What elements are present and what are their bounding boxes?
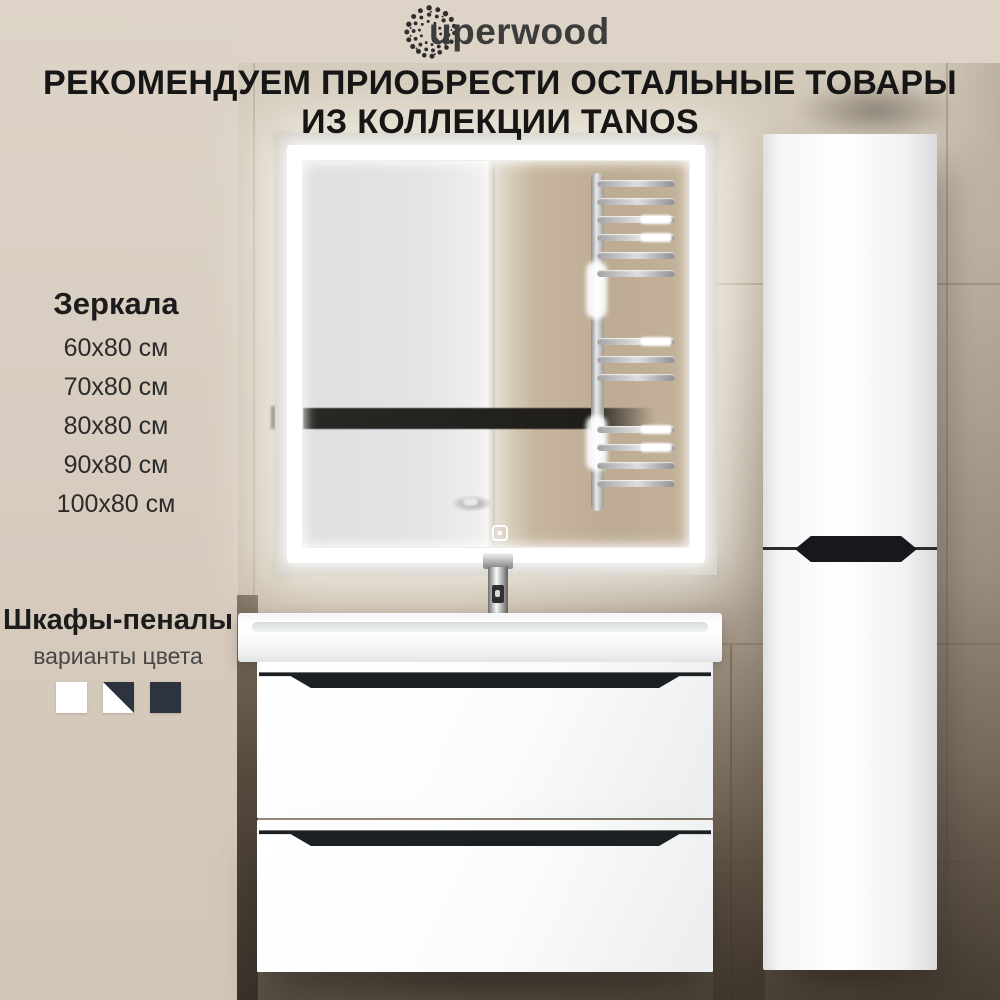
color-swatch-white-dark — [103, 682, 134, 713]
tall-cabinet-handle — [795, 536, 917, 562]
tile-grout-line — [253, 63, 255, 595]
color-swatch-white — [56, 682, 87, 713]
tall-cabinet-door-seam — [763, 547, 797, 550]
heading-line-1: РЕКОМЕНДУЕМ ПРИОБРЕСТИ ОСТАЛЬНЫЕ ТОВАРЫ — [0, 64, 1000, 103]
faucet-spout-highlight — [495, 590, 500, 597]
sink-basin-shadow — [252, 622, 708, 632]
heading-line-2: ИЗ КОЛЛЕКЦИИ TANOS — [0, 103, 1000, 142]
pencil-cabinets-title: Шкафы-пеналы — [0, 604, 236, 637]
color-options-label: варианты цвета — [0, 643, 236, 670]
brand-logo: uperwood — [403, 6, 610, 58]
mirror-size-item: 80х80 см — [0, 407, 232, 446]
tall-cabinet-door-seam — [915, 547, 937, 550]
color-swatch-row — [0, 682, 236, 713]
logo-text: uperwood — [429, 11, 610, 53]
mirrors-title: Зеркала — [0, 286, 232, 322]
mirror-size-item: 100х80 см — [0, 485, 232, 524]
mirror-size-item: 70х80 см — [0, 368, 232, 407]
vanity-drawer-bottom — [257, 820, 713, 972]
mirror-sizes-list: 60х80 см 70х80 см 80х80 см 90х80 см 100х… — [0, 329, 232, 524]
led-light-frame — [287, 145, 705, 563]
drawer-handle-groove — [259, 671, 711, 688]
mirror-size-item: 60х80 см — [0, 329, 232, 368]
sink-countertop — [238, 613, 722, 662]
bathroom-mirror — [275, 133, 717, 575]
mirrors-section: Зеркала 60х80 см 70х80 см 80х80 см 90х80… — [0, 286, 232, 524]
vanity-drawer-top — [257, 662, 713, 818]
wall-top-band — [238, 0, 1000, 65]
faucet-spout-window — [492, 585, 504, 603]
tile-grout-line — [946, 63, 948, 1000]
recommendation-heading: РЕКОМЕНДУЕМ ПРИОБРЕСТИ ОСТАЛЬНЫЕ ТОВАРЫ … — [0, 64, 1000, 142]
pencil-cabinets-section: Шкафы-пеналы варианты цвета — [0, 604, 236, 713]
product-banner: uperwood РЕКОМЕНДУЕМ ПРИОБРЕСТИ ОСТАЛЬНЫ… — [0, 0, 1000, 1000]
cabinet-gap-shadow — [713, 640, 765, 1000]
mirror-size-item: 90х80 см — [0, 446, 232, 485]
drawer-handle-groove — [259, 829, 711, 846]
color-swatch-dark — [150, 682, 181, 713]
tall-cabinet — [763, 134, 937, 970]
